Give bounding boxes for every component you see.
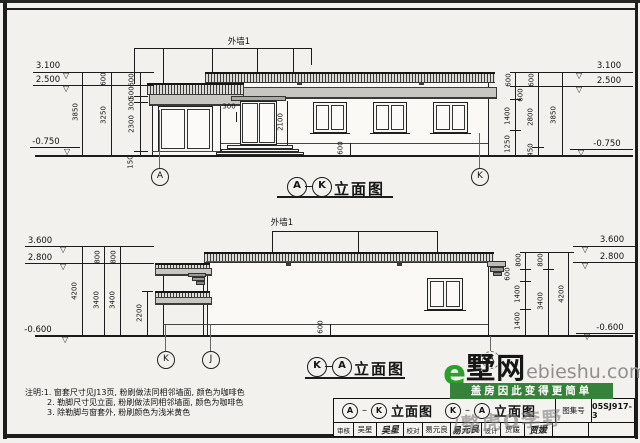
dim-line [147, 291, 148, 336]
level-text: -0.600 [596, 324, 623, 333]
title-text: 立面图 [391, 401, 433, 420]
cornice-line [206, 261, 492, 262]
level-line [33, 72, 154, 73]
drain-spout [286, 263, 291, 266]
dim-text: 150 [128, 155, 135, 168]
leader-line [212, 48, 213, 73]
dim-chain [104, 246, 105, 337]
level-text: -0.750 [32, 138, 59, 147]
dim-text: 300 [129, 97, 136, 110]
level-marker-icon: ▽ [576, 72, 582, 80]
review-signature: 吴星 [376, 423, 403, 436]
dim-text: 1250 [505, 135, 512, 153]
dim-text: 600 [101, 72, 108, 85]
level-text: 2.800 [28, 254, 52, 263]
dim-chain [525, 252, 526, 337]
review-label: 审核 [334, 423, 353, 436]
frame-left [3, 3, 7, 439]
level-text: -0.750 [593, 140, 620, 149]
dim-text: 2300 [129, 115, 136, 133]
window-sash [446, 281, 460, 307]
window-sash [436, 105, 450, 130]
grid-bubble: K [157, 351, 175, 369]
check-label: 校对 [403, 423, 422, 436]
dim-text: 4200 [72, 282, 79, 300]
porch-lower-slab-edge [155, 297, 212, 305]
atlas-number: 05SJ917-3 [591, 399, 634, 422]
window-sash [391, 105, 404, 130]
tick-line [134, 102, 148, 103]
plinth-line [163, 324, 488, 325]
window-sash [430, 281, 444, 307]
dim-text: 600 [506, 73, 513, 86]
dim-line [330, 324, 331, 336]
drain-spout [297, 82, 302, 85]
drain-spout [419, 82, 424, 85]
tick-line [134, 151, 148, 152]
level-marker-icon: ▽ [60, 263, 66, 271]
title-underline [305, 377, 405, 379]
title-bubble: A [332, 357, 352, 377]
level-marker-icon: ▽ [582, 262, 588, 270]
title-bubble: K [371, 403, 387, 419]
window [313, 102, 347, 133]
dim-chain [548, 252, 549, 337]
level-marker-icon: ▽ [582, 246, 588, 254]
tick-line [520, 252, 574, 253]
note-line: 3. 除勒脚与窗套外, 粉刷颜色为浅米黄色 [47, 409, 190, 417]
dim-text: 3400 [110, 291, 117, 309]
window-sill [310, 133, 350, 134]
title-bubble: A [287, 177, 307, 197]
window-sash [331, 105, 344, 130]
wall-label: 外墙1 [228, 38, 250, 47]
page-value-cell [588, 423, 634, 436]
window [433, 102, 468, 133]
dim-chain [515, 72, 516, 157]
dim-text: 600 [318, 320, 325, 333]
dim-text: 2200 [137, 304, 144, 322]
level-marker-icon: ▽ [62, 336, 68, 344]
wall-label-bracket [134, 48, 311, 49]
level-marker-icon: ▽ [64, 148, 70, 156]
dim-chain [140, 72, 141, 157]
drain-spout [397, 263, 402, 266]
dim-text: 600 [518, 88, 525, 101]
note-line: 2. 勒脚尺寸见立面, 粉刷做法同相邻墙面, 颜色为咖啡色 [47, 399, 243, 407]
corbel-step [196, 281, 205, 285]
level-text: 3.100 [597, 62, 621, 71]
dim-text: 4200 [559, 285, 566, 303]
level-text: 2.500 [597, 77, 621, 86]
ground-line [35, 335, 633, 337]
level-line [25, 263, 154, 264]
level-marker-icon: ▽ [584, 333, 590, 341]
dim-text: 3850 [551, 106, 558, 124]
dim-chain [538, 72, 539, 157]
title-dash: – [362, 405, 367, 416]
dim-text: 800 [95, 250, 102, 263]
level-marker-icon: ▽ [63, 72, 69, 80]
grid-bubble: K [471, 168, 489, 186]
dim-line [236, 112, 237, 122]
dim-text: 800 [111, 250, 118, 263]
leader-line [358, 231, 359, 253]
dim-text: 800 [538, 253, 545, 266]
door-leaf [187, 109, 211, 149]
title-bubble: A [342, 403, 358, 419]
roof-coping [205, 72, 495, 83]
dim-line [287, 101, 288, 145]
dim-chain [568, 252, 569, 337]
level-text: -0.600 [24, 326, 51, 335]
dim-text: 3250 [101, 106, 108, 124]
leader-line [163, 48, 164, 84]
porch-door [158, 106, 213, 152]
logo-domain: ebieshu.com [526, 361, 640, 383]
grid-bubble: J [202, 351, 220, 369]
level-text: 2.500 [36, 76, 60, 85]
dim-text: 1400 [515, 285, 522, 303]
window [373, 102, 407, 133]
entry-door [240, 101, 277, 145]
title-bubble: K [312, 177, 332, 197]
frame-top [3, 8, 638, 10]
window [427, 278, 463, 310]
level-marker-icon: ▽ [578, 149, 584, 157]
door-leaf [259, 103, 275, 143]
level-text: 3.600 [600, 236, 624, 245]
dim-text: 2100 [278, 113, 285, 131]
grid-line [159, 110, 160, 168]
dim-text: 3400 [538, 292, 545, 310]
dim-chain [111, 72, 112, 157]
grid-bubble: A [151, 168, 169, 186]
dim-text: 1400 [505, 107, 512, 125]
grid-line [210, 325, 211, 351]
dim-text: 300 [222, 104, 235, 111]
dim-text: 2800 [528, 108, 535, 126]
leader-line [311, 48, 312, 65]
slogan-banner: 盖房因此变得更简单 [450, 383, 613, 399]
window-sill [430, 133, 471, 134]
level-text: 2.800 [600, 253, 624, 262]
top-bar [0, 0, 640, 3]
dim-line [350, 143, 351, 156]
section-title: 立面图 [354, 358, 405, 379]
door-leaf [242, 103, 258, 143]
level-marker-icon: ▽ [60, 246, 66, 254]
review-name: 吴星 [353, 423, 376, 436]
logo-name: 墅网 [466, 351, 526, 385]
level-marker-icon: ▽ [576, 86, 582, 94]
note-line: 注明:1. 窗套尺寸见J13页, 粉刷做法同相邻墙面, 颜色为咖啡色 [25, 389, 245, 397]
dim-text: 450 [528, 143, 535, 156]
dim-text: 600 [505, 267, 512, 280]
door-leaf [161, 109, 185, 149]
dim-text: 3400 [94, 291, 101, 309]
dim-chain [562, 72, 563, 157]
check-name: 易元良 [422, 423, 450, 436]
level-text: 3.100 [36, 62, 60, 71]
window-sash [452, 105, 466, 130]
title-underline [277, 196, 393, 198]
level-line [33, 85, 154, 86]
window-sash [376, 105, 389, 130]
dim-text: 600 [129, 73, 136, 86]
dim-text: 600 [529, 73, 536, 86]
level-marker-icon: ▽ [63, 85, 69, 93]
ground-line [35, 155, 633, 157]
level-line [30, 147, 80, 148]
dim-chain [120, 246, 121, 337]
drawing-sheet: 外墙1 300 [0, 0, 640, 443]
dim-chain [82, 72, 83, 157]
wall-label: 外墙1 [271, 219, 293, 228]
grid-line [479, 133, 480, 168]
title-bubble: K [307, 357, 327, 377]
level-text: 3.600 [28, 237, 52, 246]
grid-line [165, 325, 166, 351]
dim-text: 3850 [73, 103, 80, 121]
window-sill [370, 133, 410, 134]
window-sash [316, 105, 329, 130]
signature-text: 吴星 [381, 423, 400, 436]
level-line [25, 246, 154, 247]
tick-line [134, 96, 148, 97]
dim-text: 800 [516, 253, 523, 266]
tick-line [142, 291, 153, 292]
eave-bracket [493, 272, 502, 276]
wall-label-bracket [272, 231, 438, 232]
leader-line [293, 48, 294, 73]
porch-plinth-line [152, 151, 220, 152]
dim-text: 600 [338, 141, 345, 154]
window-sill [424, 310, 466, 311]
dim-chain [82, 246, 83, 337]
dim-text: 1400 [515, 312, 522, 330]
